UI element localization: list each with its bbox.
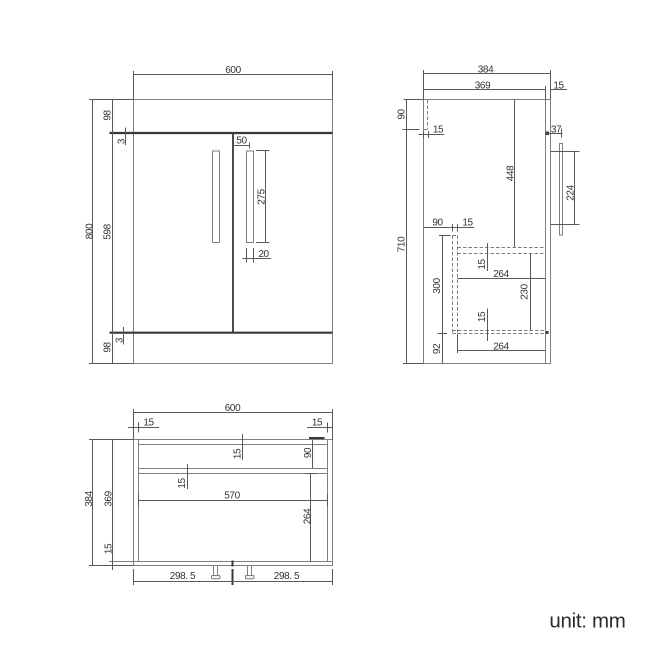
svg-text:15: 15 (177, 478, 188, 489)
svg-text:264: 264 (303, 508, 314, 524)
svg-text:264: 264 (493, 269, 509, 280)
svg-text:15: 15 (104, 543, 115, 554)
svg-text:384: 384 (84, 490, 95, 506)
svg-text:15: 15 (433, 125, 444, 136)
svg-text:369: 369 (475, 80, 491, 91)
svg-text:800: 800 (85, 223, 96, 239)
svg-text:3: 3 (115, 337, 126, 343)
svg-text:298. 5: 298. 5 (170, 571, 196, 582)
svg-text:15: 15 (312, 418, 323, 429)
svg-text:298. 5: 298. 5 (274, 571, 300, 582)
svg-text:230: 230 (520, 283, 531, 299)
svg-text:15: 15 (553, 81, 564, 92)
svg-text:15: 15 (462, 218, 473, 229)
svg-text:50: 50 (236, 136, 247, 147)
svg-text:264: 264 (493, 342, 509, 353)
svg-text:384: 384 (478, 64, 494, 75)
svg-text:3: 3 (117, 138, 128, 144)
svg-text:37: 37 (551, 125, 562, 136)
svg-text:224: 224 (566, 184, 577, 200)
svg-text:98: 98 (103, 342, 114, 353)
svg-text:600: 600 (225, 65, 241, 76)
svg-text:369: 369 (104, 490, 115, 506)
svg-text:20: 20 (258, 249, 269, 260)
svg-text:275: 275 (257, 188, 268, 204)
svg-text:92: 92 (432, 343, 443, 354)
svg-text:98: 98 (103, 110, 114, 121)
svg-text:15: 15 (477, 259, 488, 270)
svg-text:15: 15 (477, 311, 488, 322)
svg-text:90: 90 (303, 447, 314, 458)
svg-text:448: 448 (506, 165, 517, 181)
svg-text:300: 300 (432, 277, 443, 293)
svg-text:710: 710 (397, 236, 408, 252)
svg-text:600: 600 (225, 403, 241, 414)
svg-text:15: 15 (233, 448, 244, 459)
svg-text:90: 90 (432, 218, 443, 229)
svg-text:570: 570 (224, 491, 240, 502)
svg-text:unit: mm: unit: mm (549, 610, 625, 633)
svg-text:90: 90 (397, 109, 408, 120)
svg-text:15: 15 (143, 418, 154, 429)
svg-text:598: 598 (103, 223, 114, 239)
